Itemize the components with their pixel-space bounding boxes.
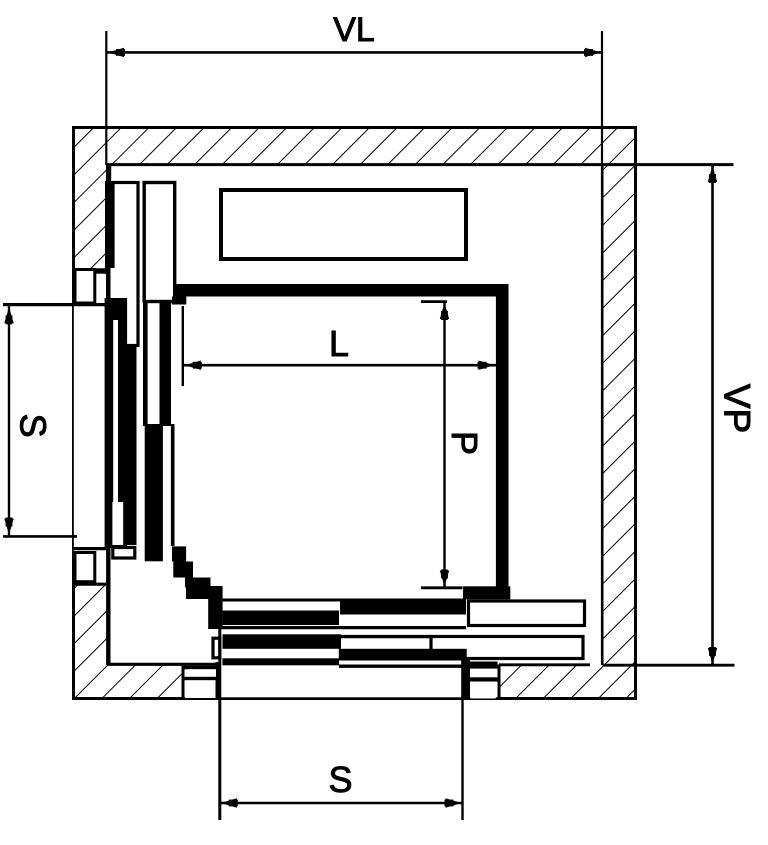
svg-text:S: S (328, 759, 352, 800)
svg-text:VP: VP (717, 384, 758, 433)
svg-text:P: P (444, 431, 485, 455)
svg-text:VL: VL (333, 11, 375, 49)
svg-text:L: L (329, 323, 349, 364)
svg-text:S: S (13, 414, 54, 438)
